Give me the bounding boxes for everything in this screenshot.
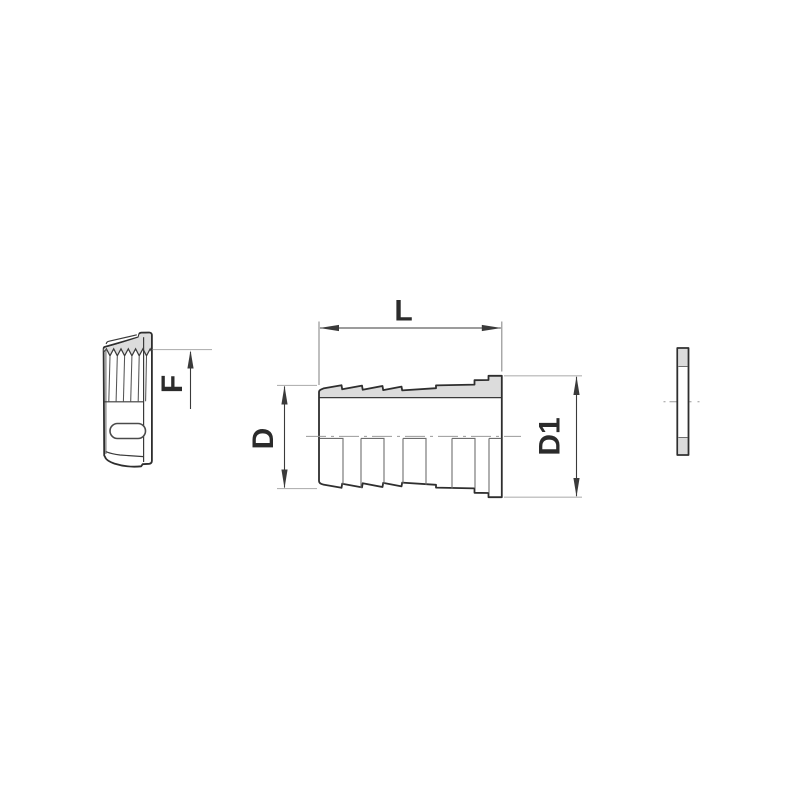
l-label: L [394,295,412,328]
washer-top-section [678,349,687,367]
dimension-L: L [319,295,502,386]
cap-nut-view [104,333,152,467]
d-label: D [247,428,280,450]
dimension-D: D [247,385,317,488]
d-arrow-up [281,386,287,405]
l-arrow-right [482,325,502,331]
hose-barb-fitting-view [306,376,521,497]
technical-drawing-page: F L D [0,0,800,800]
dimension-F: F [153,350,213,409]
nut-slot [110,424,146,439]
f-arrow-up [187,350,193,368]
washer-section-view [664,348,700,455]
d1-arrow-up [573,376,579,395]
washer-bottom-section [678,438,687,455]
l-arrow-left [319,325,339,331]
hose-barb-fitting-drawing: F L D [0,0,800,800]
f-label: F [156,375,189,393]
d-arrow-down [281,470,287,489]
d1-arrow-down [573,478,579,497]
fitting-section-fill [319,376,502,398]
d1-label: D1 [534,417,567,455]
